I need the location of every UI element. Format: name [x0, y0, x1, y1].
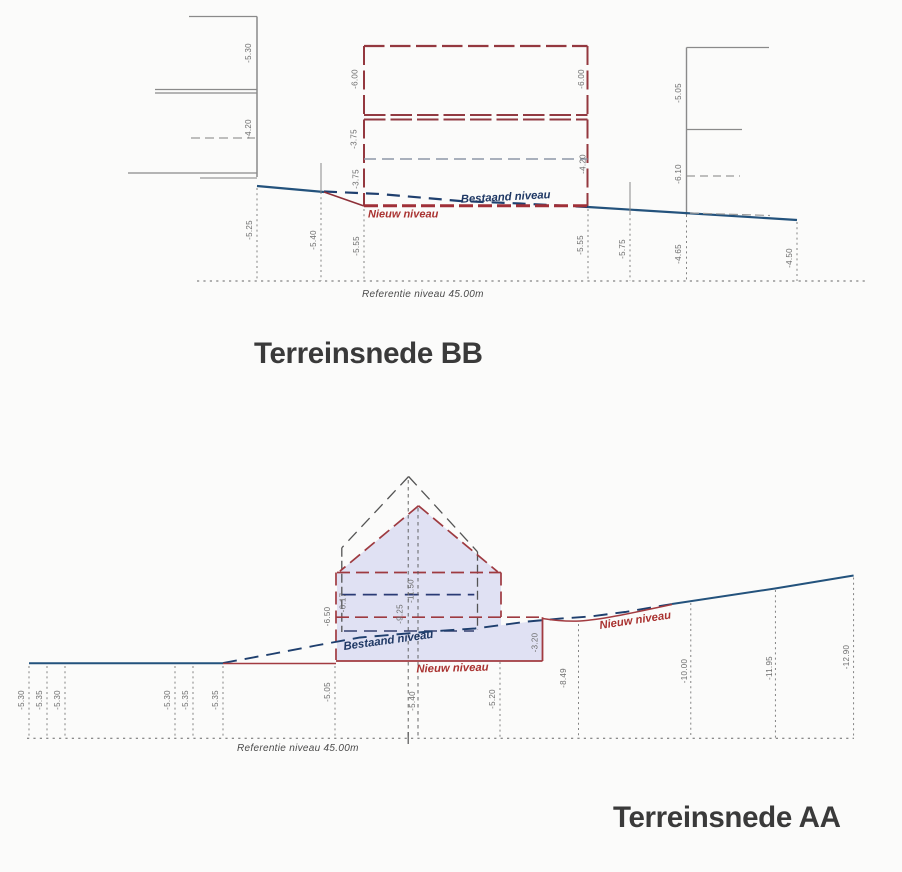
svg-text:-12.90: -12.90: [842, 645, 851, 670]
svg-text:Terreinsnede BB: Terreinsnede BB: [254, 337, 483, 370]
svg-text:Referentie niveau 45.00m: Referentie niveau 45.00m: [362, 289, 484, 300]
svg-text:-6.17: -6.17: [339, 592, 348, 612]
svg-text:-6.00: -6.00: [577, 69, 586, 89]
svg-text:-11.95: -11.95: [765, 656, 774, 680]
svg-text:-5.30: -5.30: [244, 43, 253, 63]
svg-text:-10.00: -10.00: [680, 659, 689, 684]
svg-text:-5.40: -5.40: [309, 230, 318, 250]
svg-text:-5.30: -5.30: [17, 690, 26, 710]
svg-text:-5.20: -5.20: [488, 689, 497, 709]
svg-text:-5.30: -5.30: [53, 690, 62, 710]
svg-text:-11.50: -11.50: [407, 579, 416, 603]
svg-text:-3.20: -3.20: [531, 632, 540, 652]
svg-text:-4.20: -4.20: [244, 119, 253, 139]
svg-text:-5.25: -5.25: [245, 220, 254, 240]
svg-text:-5.40: -5.40: [408, 691, 417, 711]
svg-text:-6.50: -6.50: [323, 606, 332, 626]
svg-text:Referentie niveau 45.00m: Referentie niveau 45.00m: [237, 743, 359, 754]
svg-text:-9.25: -9.25: [396, 604, 405, 624]
svg-text:-4.65: -4.65: [674, 244, 683, 264]
svg-text:-3.75: -3.75: [350, 129, 359, 149]
svg-text:-5.30: -5.30: [163, 690, 172, 710]
svg-text:Terreinsnede AA: Terreinsnede AA: [613, 801, 841, 834]
svg-text:-6.00: -6.00: [351, 69, 360, 89]
svg-text:-4.50: -4.50: [785, 248, 794, 268]
svg-text:-5.05: -5.05: [323, 682, 332, 702]
svg-text:-6.10: -6.10: [674, 164, 683, 184]
svg-text:Nieuw niveau: Nieuw niveau: [368, 209, 439, 221]
svg-text:-8.49: -8.49: [559, 668, 568, 688]
svg-text:-3.75: -3.75: [352, 169, 361, 189]
svg-text:-5.55: -5.55: [576, 235, 585, 255]
svg-text:-5.75: -5.75: [618, 239, 627, 259]
svg-text:-5.55: -5.55: [352, 236, 361, 256]
svg-text:-5.35: -5.35: [181, 690, 190, 710]
svg-text:-5.35: -5.35: [35, 690, 44, 710]
svg-text:Nieuw niveau: Nieuw niveau: [416, 662, 489, 676]
svg-text:-5.05: -5.05: [674, 83, 683, 103]
svg-text:-4.20: -4.20: [579, 154, 588, 174]
svg-text:-5.35: -5.35: [211, 690, 220, 710]
